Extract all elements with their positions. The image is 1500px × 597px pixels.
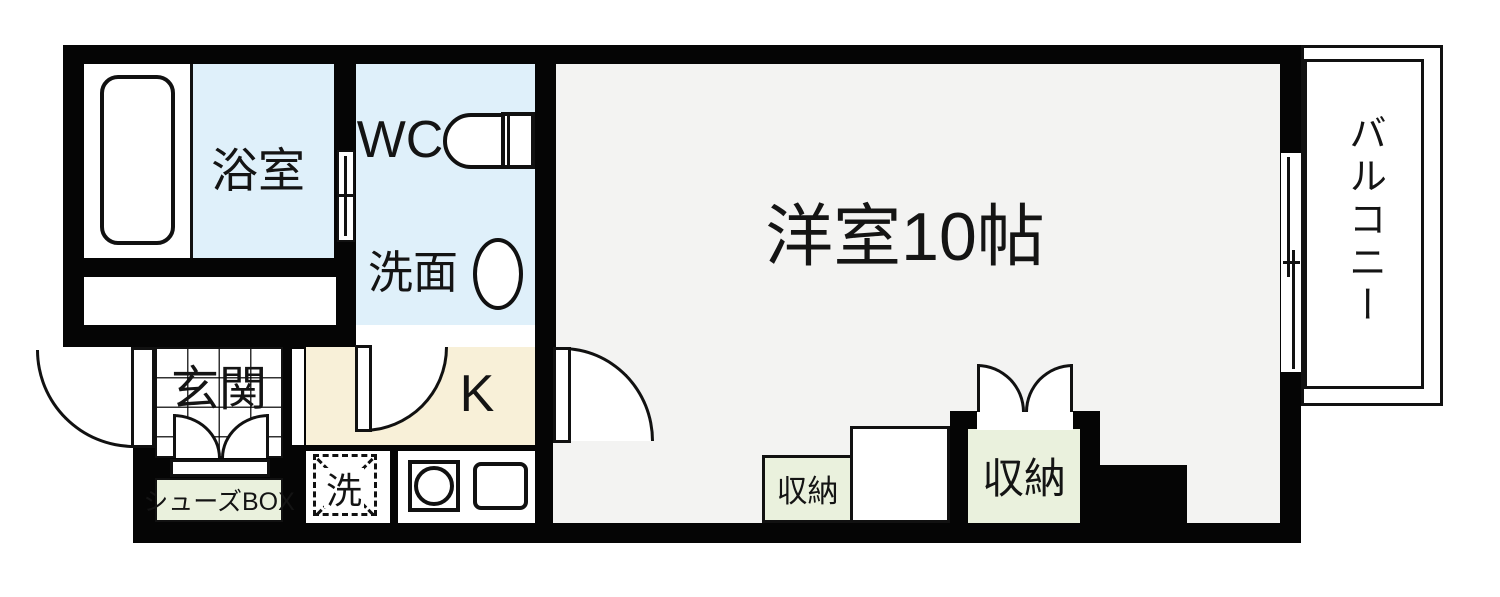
wall-bottom	[133, 523, 1301, 543]
balcony-label: バルコニー	[1340, 75, 1388, 365]
front-door-swing	[36, 350, 134, 448]
entrance-threshold	[170, 459, 270, 477]
wall-step	[1100, 465, 1187, 523]
storage-right-threshold	[977, 411, 1073, 430]
storage-left-label: 収納	[762, 458, 853, 518]
wall-laundry-counter	[390, 448, 398, 523]
bathroom-divider	[190, 64, 193, 258]
wall-wc-mainroom	[535, 45, 556, 347]
shoes-box-label: シューズBOX	[155, 481, 283, 519]
balcony-window-sash-1	[1287, 157, 1290, 277]
wall-top	[63, 45, 1301, 64]
main-room-label: 洋室10帖	[655, 193, 1155, 267]
entrance-kitchen-opening	[292, 349, 304, 445]
mainroom-door-leaf	[553, 347, 571, 443]
closet-white-box	[850, 426, 950, 523]
under-bath-counter	[84, 277, 336, 325]
laundry-label: 洗	[324, 468, 364, 508]
kitchen-label: K	[445, 367, 509, 421]
stove-icon	[473, 462, 528, 510]
wc-label: WC	[358, 113, 442, 167]
washroom-door-opening	[356, 325, 535, 347]
front-door-leaf	[131, 347, 155, 448]
wall-kitchen-stub	[535, 347, 553, 523]
washroom-label: 洗面	[360, 243, 466, 293]
washbasin-icon	[473, 238, 523, 310]
balcony-window-sash-2	[1292, 250, 1295, 369]
bathroom-door-tick	[338, 194, 353, 197]
toilet-bowl-icon	[443, 113, 505, 169]
entrance-label: 玄関	[157, 358, 281, 410]
sink-circle-icon	[414, 466, 454, 506]
floor-plan: 浴室 WC 洗面 玄関 シューズBOX K 洗 洋室10帖 収納	[0, 0, 1500, 597]
storage-right-label: 収納	[968, 440, 1080, 510]
toilet-tank-line	[507, 116, 510, 165]
balcony-window-tick	[1283, 261, 1300, 264]
washroom-door-leaf	[355, 345, 372, 432]
bathroom-label: 浴室	[196, 140, 320, 192]
bathtub	[100, 75, 175, 245]
